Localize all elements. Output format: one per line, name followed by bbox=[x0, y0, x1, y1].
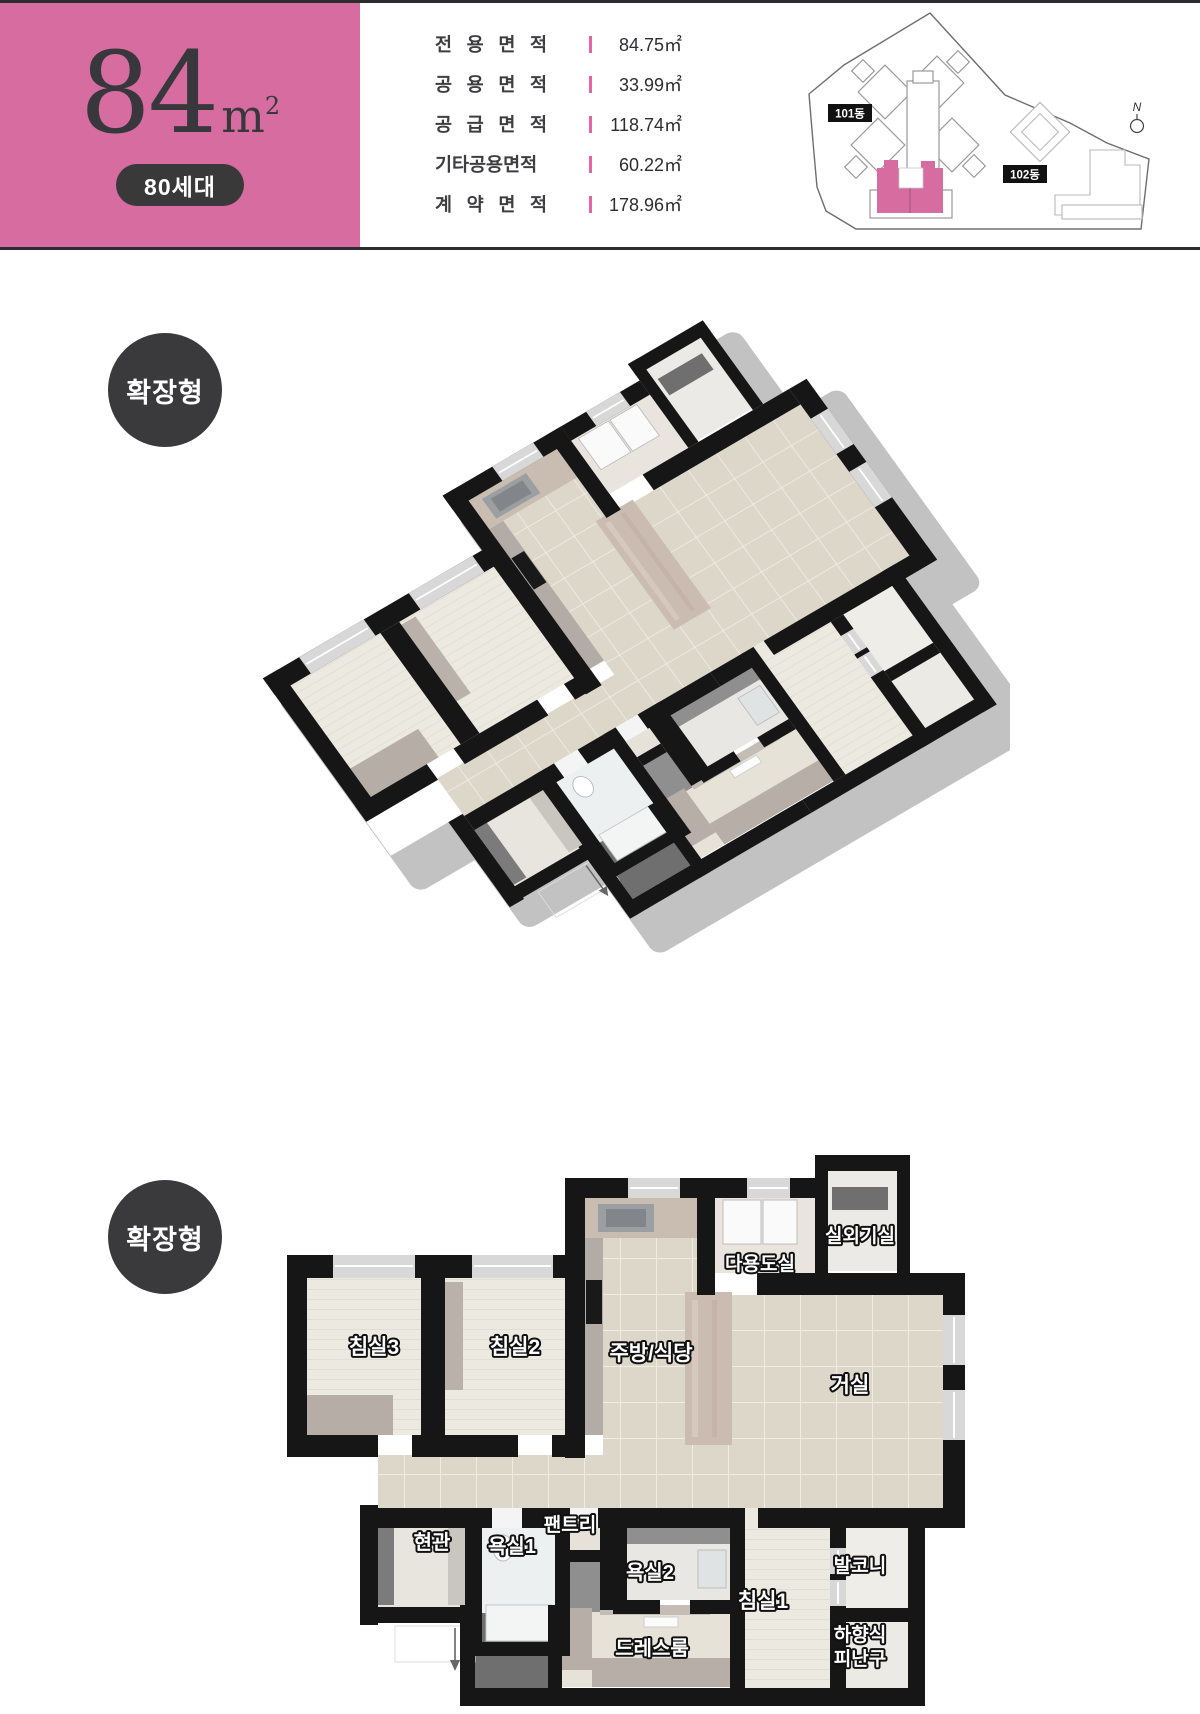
area-row-exclusive: 전 용 면 적 84.75㎡ bbox=[435, 24, 682, 64]
area-value: 118.74㎡ bbox=[594, 111, 682, 137]
pink-tick bbox=[589, 76, 592, 93]
area-label: 계 약 면 적 bbox=[435, 191, 547, 217]
room-label-living: 거실 bbox=[831, 1374, 870, 1397]
area-table: 전 용 면 적 84.75㎡ 공 용 면 적 33.99㎡ 공 급 면 적 11… bbox=[435, 24, 682, 224]
iso-floor-plan bbox=[210, 300, 1010, 1000]
households-badge: 80세대 bbox=[116, 164, 244, 206]
room-label-bath1: 욕실1 bbox=[488, 1535, 536, 1558]
room-label-dressroom: 드레스룸 bbox=[615, 1637, 689, 1660]
brochure-page: 84 m2 80세대 전 용 면 적 84.75㎡ 공 용 면 적 33.99㎡… bbox=[0, 0, 1200, 1714]
area-label: 기타공용면적 bbox=[435, 151, 547, 177]
building-102-badge: 102동 bbox=[1003, 165, 1047, 183]
unit-size-number: 84 bbox=[80, 38, 217, 150]
iso-geometry bbox=[212, 300, 1010, 998]
room-label-pantry: 팬트리 bbox=[544, 1514, 596, 1536]
area-value: 33.99㎡ bbox=[594, 71, 682, 97]
room-label-balcony: 발코니 bbox=[834, 1555, 886, 1577]
unit-size-block: 84 m2 80세대 bbox=[0, 3, 360, 247]
pink-tick bbox=[589, 116, 592, 133]
unit-size-superscript: 2 bbox=[265, 92, 280, 120]
room-label-bedroom2: 침실2 bbox=[490, 1336, 540, 1359]
area-value: 178.96㎡ bbox=[594, 191, 682, 217]
unit-size-unit: m2 bbox=[221, 89, 280, 143]
room-label-bedroom1: 침실1 bbox=[738, 1590, 789, 1613]
plan-section-badge: 확장형 bbox=[108, 1180, 222, 1294]
room-label-bedroom3: 침실3 bbox=[349, 1336, 399, 1359]
room-label-escape-2: 피난구 bbox=[834, 1648, 886, 1670]
area-value: 60.22㎡ bbox=[594, 151, 682, 177]
room-label-outdoor: 실외기실 bbox=[825, 1225, 895, 1247]
north-indicator: N bbox=[1131, 100, 1144, 133]
unit-size-text: 84 m2 bbox=[80, 38, 280, 150]
area-row-other-common: 기타공용면적 60.22㎡ bbox=[435, 144, 682, 184]
site-plan: 101동 102동 N bbox=[800, 5, 1190, 235]
svg-text:102동: 102동 bbox=[1010, 169, 1040, 182]
building-101-badge: 101동 bbox=[828, 104, 872, 122]
room-label-kitchen: 주방/식당 bbox=[609, 1342, 692, 1365]
svg-text:N: N bbox=[1133, 100, 1142, 114]
room-label-utility: 다용도실 bbox=[725, 1253, 795, 1275]
pink-tick bbox=[589, 196, 592, 213]
room-label-entrance: 현관 bbox=[414, 1531, 451, 1554]
area-label: 전 용 면 적 bbox=[435, 31, 547, 57]
area-label: 공 급 면 적 bbox=[435, 111, 547, 137]
area-row-supply: 공 급 면 적 118.74㎡ bbox=[435, 104, 682, 144]
highlighted-unit bbox=[877, 160, 943, 213]
room-label-bath2: 욕실2 bbox=[626, 1561, 674, 1584]
area-value: 84.75㎡ bbox=[594, 31, 682, 57]
pink-tick bbox=[589, 156, 592, 173]
header-divider-rule bbox=[0, 247, 1200, 250]
floor-plan-2d: 침실3 침실2 주방/식당 거실 다용도실 실외기실 현관 욕실1 팬트리 욕실… bbox=[260, 1150, 970, 1706]
room-label-escape-1: 하향식 bbox=[834, 1624, 886, 1646]
area-label: 공 용 면 적 bbox=[435, 71, 547, 97]
pink-tick bbox=[589, 36, 592, 53]
svg-text:101동: 101동 bbox=[835, 108, 865, 121]
area-row-common: 공 용 면 적 33.99㎡ bbox=[435, 64, 682, 104]
area-row-contract: 계 약 면 적 178.96㎡ bbox=[435, 184, 682, 224]
iso-section-badge: 확장형 bbox=[108, 333, 222, 447]
